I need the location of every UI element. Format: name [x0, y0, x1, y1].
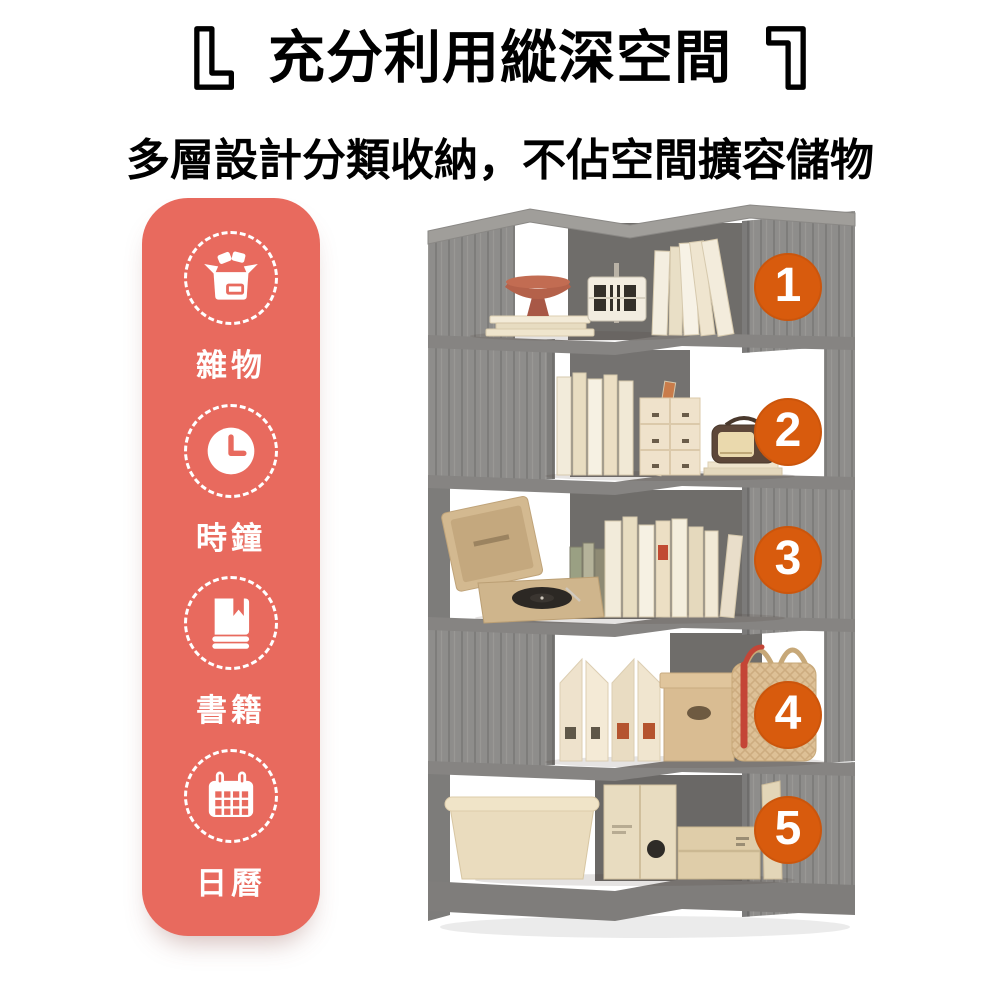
category-item-books: 書籍: [184, 576, 278, 730]
dashed-circle: [184, 231, 278, 325]
dashed-circle: [184, 749, 278, 843]
dashed-circle: [184, 404, 278, 498]
poster: 充分利用縱深空間 多層設計分類收納，不佔空間擴容儲物 雜物: [0, 0, 1000, 1000]
subtitle: 多層設計分類收納，不佔空間擴容儲物: [0, 124, 1000, 188]
category-item-calendar: 日曆: [184, 749, 278, 903]
category-label: 日曆: [196, 858, 266, 903]
tier-marker: 5: [754, 796, 822, 864]
category-item-clock: 時鐘: [184, 404, 278, 558]
book-icon: [203, 595, 259, 651]
tier-marker: 3: [754, 526, 822, 594]
calendar-icon: [203, 768, 259, 824]
category-label: 雜物: [196, 340, 266, 385]
category-label: 書籍: [196, 685, 266, 730]
clock-icon: [203, 423, 259, 479]
floor-shadow: [440, 916, 850, 938]
dashed-circle: [184, 576, 278, 670]
tier-marker: 4: [754, 681, 822, 749]
tier-marker: 2: [754, 398, 822, 466]
tier-marker: 1: [754, 253, 822, 321]
page-title: 充分利用縱深空間: [268, 27, 732, 90]
category-label: 時鐘: [196, 513, 266, 558]
corner-bracket-left-icon: [188, 20, 234, 96]
category-item-misc: 雜物: [184, 231, 278, 385]
open-box-icon: [203, 250, 259, 306]
category-panel: 雜物 時鐘 書籍: [142, 198, 320, 936]
header: 充分利用縱深空間: [0, 20, 1000, 96]
corner-bracket-right-icon: [766, 20, 812, 96]
